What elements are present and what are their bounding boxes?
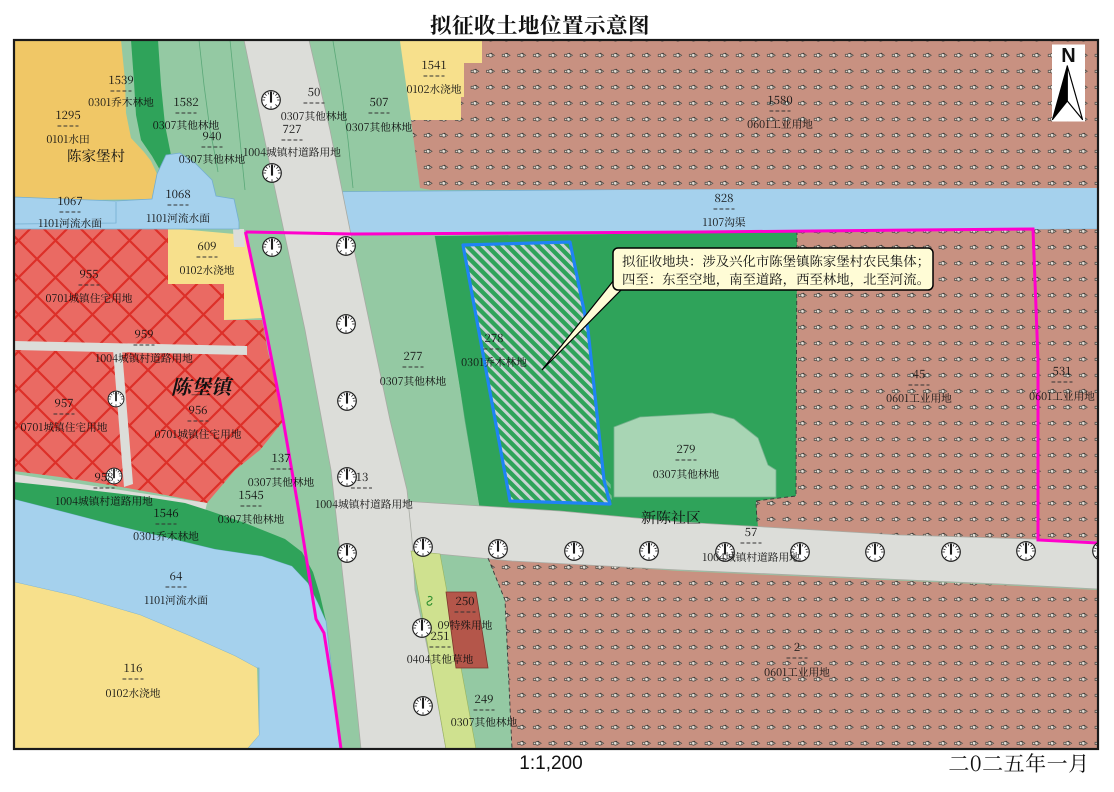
svg-text:1101河流水面: 1101河流水面 <box>38 216 102 231</box>
svg-text:116: 116 <box>124 660 143 676</box>
svg-text:959: 959 <box>135 326 154 342</box>
svg-text:1545: 1545 <box>238 487 263 503</box>
svg-text:0307其他林地: 0307其他林地 <box>218 512 285 527</box>
svg-text:0701城镇住宅用地: 0701城镇住宅用地 <box>21 420 108 435</box>
svg-text:507: 507 <box>370 94 389 110</box>
svg-text:0601工业用地: 0601工业用地 <box>886 391 952 406</box>
svg-text:1541: 1541 <box>421 57 446 73</box>
svg-text:1101河流水面: 1101河流水面 <box>146 211 210 226</box>
svg-text:1004城镇村道路用地: 1004城镇村道路用地 <box>95 351 193 366</box>
svg-text:57: 57 <box>745 524 758 540</box>
svg-text:0404其他草地: 0404其他草地 <box>407 652 474 667</box>
svg-text:1068: 1068 <box>165 186 190 202</box>
svg-text:拟征收地块：涉及兴化市陈堡镇陈家堡村农民集体；: 拟征收地块：涉及兴化市陈堡镇陈家堡村农民集体； <box>622 251 930 270</box>
svg-text:0307其他林地: 0307其他林地 <box>281 109 348 124</box>
svg-text:958: 958 <box>95 469 114 485</box>
svg-text:279: 279 <box>677 441 696 457</box>
svg-text:1067: 1067 <box>57 193 82 209</box>
svg-text:1546: 1546 <box>153 505 178 521</box>
svg-text:0601工业用地: 0601工业用地 <box>1029 389 1095 404</box>
svg-text:0102水浇地: 0102水浇地 <box>180 263 235 278</box>
svg-text:0102水浇地: 0102水浇地 <box>106 686 161 701</box>
svg-text:1004城镇村道路用地: 1004城镇村道路用地 <box>243 145 341 160</box>
svg-text:50: 50 <box>308 84 321 100</box>
svg-text:13: 13 <box>356 469 369 485</box>
svg-text:1004城镇村道路用地: 1004城镇村道路用地 <box>315 497 413 512</box>
svg-text:940: 940 <box>203 128 222 144</box>
svg-text:拟征收土地位置示意图: 拟征收土地位置示意图 <box>430 9 650 40</box>
svg-text:45: 45 <box>913 366 926 382</box>
svg-text:955: 955 <box>80 266 99 282</box>
svg-text:0301乔木林地: 0301乔木林地 <box>88 95 154 110</box>
svg-text:0601工业用地: 0601工业用地 <box>764 665 830 680</box>
svg-text:137: 137 <box>272 450 291 466</box>
svg-text:1101河流水面: 1101河流水面 <box>144 593 208 608</box>
svg-text:1582: 1582 <box>173 94 198 110</box>
svg-text:277: 277 <box>404 348 423 364</box>
svg-text:0701城镇住宅用地: 0701城镇住宅用地 <box>155 427 242 442</box>
svg-text:0301乔木林地: 0301乔木林地 <box>133 529 199 544</box>
svg-text:1295: 1295 <box>55 107 80 123</box>
svg-text:1539: 1539 <box>108 72 133 88</box>
svg-text:1004城镇村道路用地: 1004城镇村道路用地 <box>55 494 153 509</box>
svg-text:609: 609 <box>198 238 217 254</box>
svg-text:0307其他林地: 0307其他林地 <box>653 467 720 482</box>
svg-text:0601工业用地: 0601工业用地 <box>747 117 813 132</box>
svg-text:531: 531 <box>1053 363 1072 379</box>
svg-text:二0二五年一月: 二0二五年一月 <box>948 748 1089 778</box>
svg-text:64: 64 <box>170 568 183 584</box>
svg-text:0102水浇地: 0102水浇地 <box>407 82 462 97</box>
svg-text:1:1,200: 1:1,200 <box>519 753 582 774</box>
svg-text:陈家堡村: 陈家堡村 <box>67 145 125 166</box>
svg-text:0301乔木林地: 0301乔木林地 <box>461 355 527 370</box>
svg-text:1004城镇村道路用地: 1004城镇村道路用地 <box>702 550 800 565</box>
svg-text:1107沟渠: 1107沟渠 <box>702 215 746 230</box>
svg-text:1580: 1580 <box>767 92 792 108</box>
svg-text:0307其他林地: 0307其他林地 <box>179 152 246 167</box>
svg-text:N: N <box>1061 45 1075 67</box>
svg-text:278: 278 <box>485 330 504 346</box>
svg-text:0307其他林地: 0307其他林地 <box>380 374 447 389</box>
svg-text:249: 249 <box>475 691 494 707</box>
svg-text:956: 956 <box>189 402 208 418</box>
svg-text:新陈社区: 新陈社区 <box>641 507 701 528</box>
svg-text:2: 2 <box>794 639 800 655</box>
svg-text:0307其他林地: 0307其他林地 <box>451 715 518 730</box>
svg-text:957: 957 <box>55 395 74 411</box>
svg-text:陈堡镇: 陈堡镇 <box>171 371 234 400</box>
svg-text:四至：东至空地，南至道路，西至林地，北至河流。: 四至：东至空地，南至道路，西至林地，北至河流。 <box>622 269 930 288</box>
svg-text:0701城镇住宅用地: 0701城镇住宅用地 <box>46 291 133 306</box>
svg-text:0307其他林地: 0307其他林地 <box>346 120 413 135</box>
svg-text:251: 251 <box>431 628 450 644</box>
svg-text:828: 828 <box>715 190 734 206</box>
svg-text:250: 250 <box>456 593 475 609</box>
